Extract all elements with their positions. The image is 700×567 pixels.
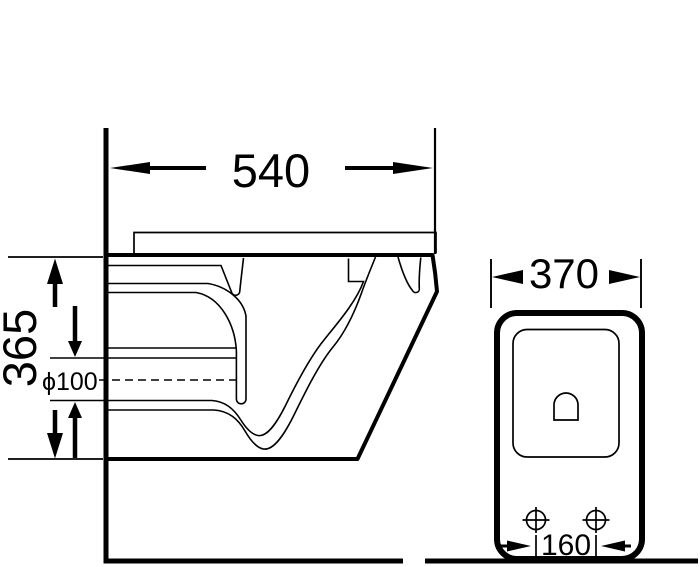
arrowhead-right xyxy=(393,162,433,174)
arrowhead-down xyxy=(47,433,63,459)
flush-pipe xyxy=(108,284,246,404)
arrowhead-left xyxy=(507,541,531,552)
technical-drawing: 540 365 ϕ100 xyxy=(0,0,700,567)
seat-lid-outline xyxy=(134,233,436,254)
bowl-inner-line xyxy=(50,259,364,436)
dim-label-width: 370 xyxy=(529,250,599,297)
front-view xyxy=(497,313,642,559)
dim-label-outlet-diameter: ϕ100 xyxy=(42,368,98,396)
rim-channel-left xyxy=(108,258,244,295)
arrowhead-right xyxy=(601,541,625,552)
arrowhead-left xyxy=(110,162,150,174)
dim-label-height: 365 xyxy=(0,309,46,387)
side-view xyxy=(50,128,698,563)
dim-label-depth: 540 xyxy=(232,144,310,197)
dim-width-370: 370 xyxy=(491,250,641,308)
arrowhead-left xyxy=(492,270,523,284)
arrowhead-up xyxy=(47,259,63,285)
dim-label-bolt-spacing: 160 xyxy=(541,529,591,562)
outlet-opening xyxy=(554,393,578,420)
body-outline xyxy=(497,313,642,559)
dim-depth-540: 540 xyxy=(110,128,435,254)
arrowhead-down xyxy=(68,341,82,357)
arrowhead-right xyxy=(609,270,640,284)
drawing-page: 540 365 ϕ100 xyxy=(0,0,700,567)
rim-channel-right xyxy=(398,257,421,293)
arrowhead-up xyxy=(68,402,82,418)
